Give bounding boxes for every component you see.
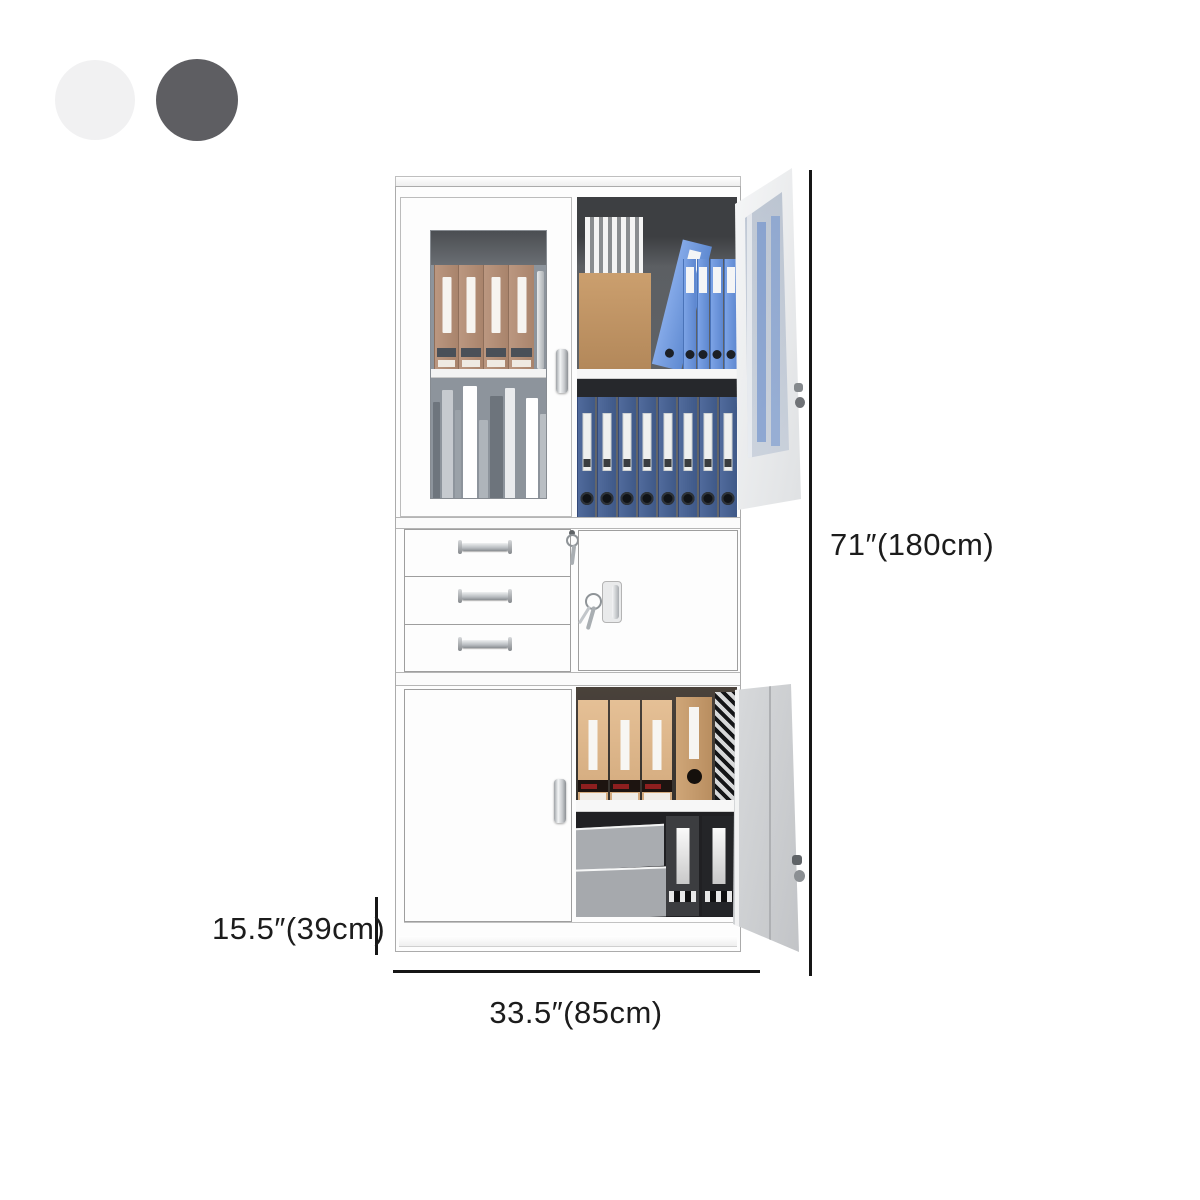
binder-through-glass	[771, 216, 780, 446]
binder-barcode	[705, 459, 712, 467]
height-dimension-line	[809, 170, 812, 976]
drawer-handle-1	[460, 543, 510, 551]
cardboard-box	[579, 273, 651, 369]
bottom-door-left	[404, 689, 572, 922]
shelf-board	[577, 369, 737, 379]
book	[479, 420, 488, 498]
binder-hole	[664, 348, 675, 359]
binder-label	[727, 267, 735, 293]
binder	[577, 397, 595, 517]
binder-barcode	[583, 459, 590, 467]
book	[433, 402, 440, 498]
binder-barcode	[664, 459, 671, 467]
binder	[597, 397, 615, 517]
binder	[483, 265, 508, 369]
binder	[458, 265, 483, 369]
binder	[678, 397, 696, 517]
binder-hole	[685, 350, 694, 359]
base-line	[404, 922, 738, 923]
file-label	[653, 720, 662, 770]
binder-label	[517, 277, 526, 333]
binder-foot	[437, 348, 456, 357]
bottom-door-handle	[554, 779, 566, 823]
upper-right-compartment	[577, 197, 737, 517]
binder	[724, 259, 737, 369]
locker-handle-recess	[602, 581, 622, 623]
file-label	[621, 720, 630, 770]
binder-hole	[621, 492, 634, 505]
binder-slots	[705, 891, 733, 902]
file-strip	[580, 793, 606, 800]
door-seam	[769, 684, 771, 954]
binder-barcode	[644, 459, 651, 467]
book	[505, 388, 515, 498]
binder-label	[492, 277, 501, 333]
binder	[638, 397, 656, 517]
binder	[618, 397, 636, 517]
binder-strip	[462, 360, 480, 367]
upper-door-key-knob	[795, 397, 805, 408]
book	[455, 410, 461, 498]
clear-bin-top	[576, 824, 664, 871]
binder-barcode	[684, 459, 691, 467]
binder-label	[442, 277, 451, 333]
file-strip	[644, 793, 670, 800]
binder-hole	[712, 350, 721, 359]
binder-hole	[641, 492, 654, 505]
binder	[683, 259, 696, 369]
file-label	[589, 720, 598, 770]
binder-hole	[699, 350, 708, 359]
binder-barcode	[725, 459, 732, 467]
width-dimension-line	[393, 970, 760, 973]
binder-hole	[687, 769, 702, 784]
binder-foot	[511, 348, 532, 357]
binder-strip	[487, 360, 505, 367]
binder	[697, 259, 710, 369]
product-dimension-image: 71″(180cm) 15.5″(39cm) 33.5″(85cm)	[0, 0, 1200, 1200]
binder-through-glass	[757, 222, 766, 442]
binder-label	[689, 707, 699, 759]
binder-hole	[681, 492, 694, 505]
binder-label	[676, 828, 689, 884]
book-row	[433, 378, 546, 498]
glass-reflection	[747, 192, 752, 458]
binder-hole	[661, 492, 674, 505]
binder-hole	[726, 350, 735, 359]
file-stripe	[645, 784, 661, 789]
door-edge-highlight	[735, 684, 739, 954]
file-box	[610, 700, 640, 800]
binder	[658, 397, 676, 517]
blue-binder-row	[683, 259, 737, 369]
glass-door-right-open	[735, 168, 802, 510]
base-strip	[399, 936, 737, 947]
drawer-divider	[405, 576, 570, 577]
binder-label	[713, 828, 726, 884]
file-box	[578, 700, 608, 800]
lower-zone	[576, 812, 737, 917]
binder-slots	[669, 891, 696, 902]
shelf-shadow	[577, 379, 737, 397]
binder	[710, 259, 723, 369]
binder	[508, 265, 534, 369]
binder-label	[713, 267, 721, 293]
navy-binder-row	[577, 397, 737, 517]
binder-label	[467, 277, 476, 333]
open-door-glass	[745, 192, 791, 458]
glass-door-left-glass	[430, 230, 547, 499]
file-strip	[612, 793, 638, 800]
locker-pull	[612, 585, 619, 619]
drawer-handle-3	[460, 640, 510, 648]
binder-foot	[461, 348, 481, 357]
bottom-door-right-open	[733, 684, 799, 954]
file-box	[642, 700, 672, 800]
lower-door-lock-knob	[792, 855, 802, 865]
file-stripe	[581, 784, 597, 789]
binder	[719, 397, 737, 517]
binder-label	[699, 267, 707, 293]
depth-dimension-label: 15.5″(39cm)	[212, 911, 362, 947]
width-dimension-label: 33.5″(85cm)	[476, 995, 676, 1031]
upper-door-lock-knob	[794, 383, 803, 392]
binder-hole	[722, 492, 735, 505]
binder-label	[686, 267, 694, 293]
middle-top-rail	[396, 517, 740, 529]
height-dimension-label: 71″(180cm)	[830, 527, 994, 563]
bottom-top-rail	[396, 672, 740, 686]
binder-foot	[486, 348, 506, 357]
tan-binder	[676, 697, 712, 800]
binder	[699, 397, 717, 517]
shelf-board	[576, 800, 737, 812]
brown-binder-row	[434, 265, 534, 369]
dark-binder	[702, 816, 736, 916]
drawer-handle-2	[460, 592, 510, 600]
book	[442, 390, 453, 498]
file-stripe	[613, 784, 629, 789]
drawer-divider	[405, 624, 570, 625]
book	[526, 398, 538, 498]
binder-strip	[438, 360, 455, 367]
woven-storage-box	[715, 692, 737, 800]
shelf-board	[431, 369, 547, 378]
binder-hole	[600, 492, 613, 505]
binder-strip	[512, 360, 531, 367]
glass-door-left-handle	[556, 349, 568, 393]
interior-shadow	[431, 231, 547, 265]
book	[540, 414, 547, 498]
binder-barcode	[624, 459, 631, 467]
dark-binder	[666, 816, 699, 916]
bottom-right-compartment	[576, 687, 737, 917]
book	[490, 396, 503, 498]
binder-hole	[702, 492, 715, 505]
lower-door-key-knob	[794, 870, 805, 882]
book	[517, 408, 524, 498]
book	[463, 386, 477, 498]
clear-bin-bottom	[576, 866, 666, 917]
rolled-paper	[537, 271, 544, 369]
binder-hole	[580, 492, 593, 505]
binder	[434, 265, 458, 369]
binder-barcode	[603, 459, 610, 467]
